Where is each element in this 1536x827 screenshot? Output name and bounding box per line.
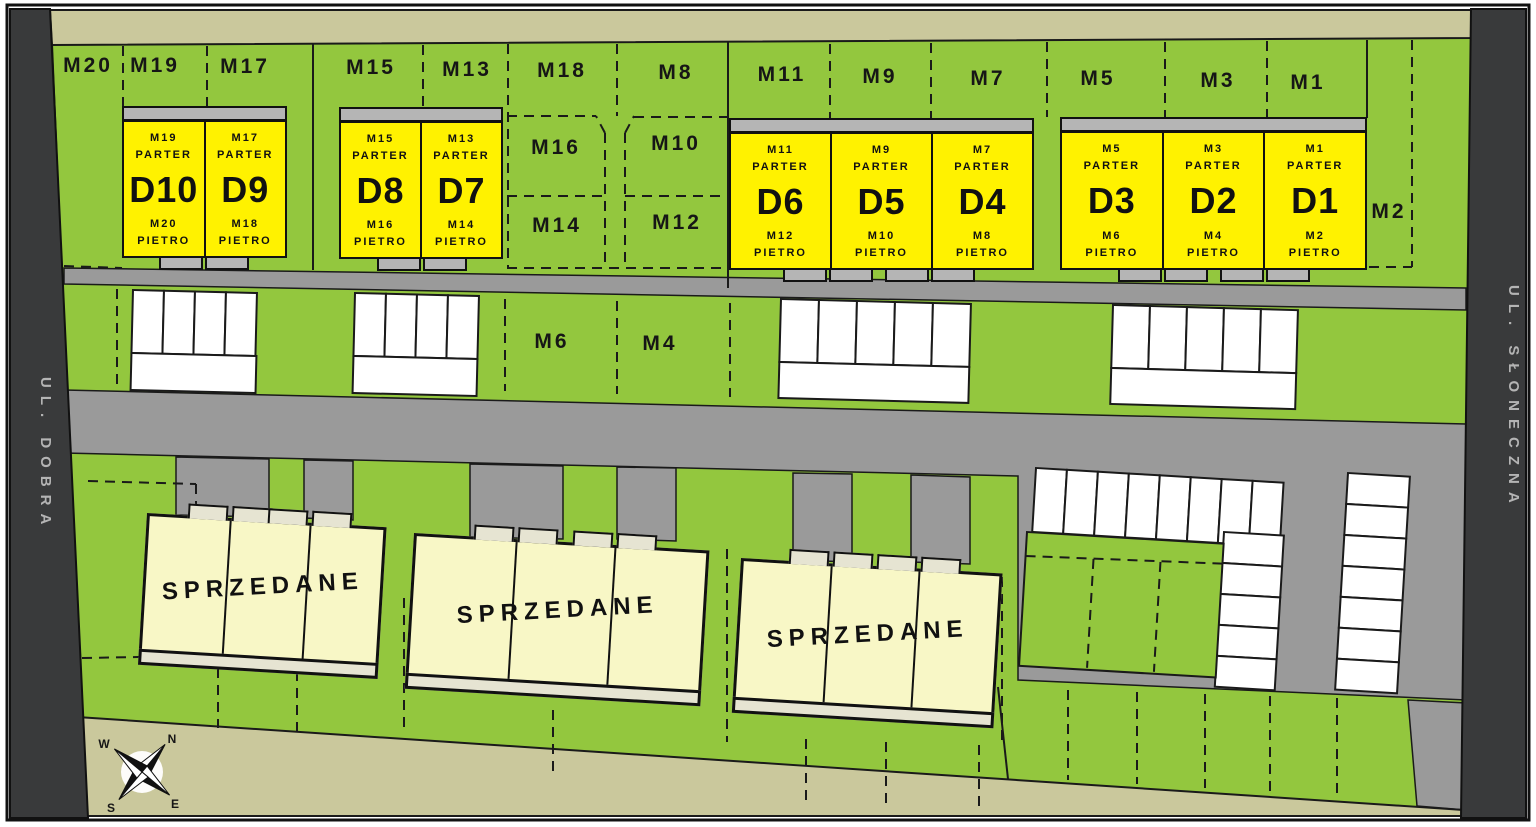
- rear-step: [1220, 270, 1264, 282]
- sold-building-label: SPRZEDANE: [456, 591, 659, 630]
- unit-divider: [606, 548, 617, 698]
- plot-m15[interactable]: M15: [346, 56, 396, 80]
- building-group-3: M11PARTER D6 M12PIETRO M9PARTER D5 M10PI…: [729, 118, 1034, 270]
- porch: [833, 551, 874, 568]
- building-d7[interactable]: M13PARTER D7 M14PIETRO: [420, 123, 501, 257]
- building-roof-strip: [122, 106, 287, 121]
- plot-m12[interactable]: M12: [652, 211, 702, 235]
- compass-south-label: S: [107, 801, 115, 815]
- street-label-sloneczna: UL. SŁONECZNA: [1478, 178, 1522, 618]
- building-group-2: M15PARTER D8 M16PIETRO M13PARTER D7 M14P…: [339, 107, 503, 259]
- building-roof-strip: [339, 107, 503, 122]
- sold-building-3[interactable]: SPRZEDANE: [732, 558, 1003, 728]
- porch: [616, 533, 657, 550]
- porch: [188, 503, 229, 520]
- rear-step: [783, 270, 827, 282]
- sold-building-label: SPRZEDANE: [161, 568, 364, 607]
- rear-step: [205, 258, 249, 270]
- street-label-dobra: UL. DOBRA: [12, 255, 54, 655]
- building-d6[interactable]: M11PARTER D6 M12PIETRO: [731, 134, 830, 268]
- porch: [789, 549, 830, 566]
- plot-m17[interactable]: M17: [220, 55, 270, 79]
- rear-step: [829, 270, 873, 282]
- building-roof-strip: [729, 118, 1034, 133]
- rear-step: [423, 259, 467, 271]
- building-roof-strip: [1060, 117, 1367, 132]
- road-southeast: [1408, 700, 1466, 810]
- parking-column-east: [1335, 473, 1410, 693]
- porch: [232, 506, 273, 523]
- rear-step: [885, 270, 929, 282]
- plot-m19[interactable]: M19: [130, 54, 180, 78]
- porch: [312, 511, 353, 528]
- porch: [877, 554, 918, 571]
- plot-m16[interactable]: M16: [531, 136, 581, 160]
- rear-step: [377, 259, 421, 271]
- rear-step: [159, 258, 203, 270]
- parking-cluster-3: [778, 299, 971, 403]
- plot-m7[interactable]: M7: [970, 67, 1005, 91]
- rear-step: [931, 270, 975, 282]
- sold-building-label: SPRZEDANE: [766, 615, 969, 654]
- site-plan: N E S W M20 M19 M17 M15 M13 M18 M8 M11 M…: [0, 0, 1536, 827]
- porch: [921, 557, 962, 574]
- parking-cluster-1: [131, 290, 258, 393]
- porch: [518, 527, 559, 544]
- top-verge: [50, 10, 1474, 45]
- plot-m10[interactable]: M10: [651, 132, 701, 156]
- sold-building-2[interactable]: SPRZEDANE: [405, 533, 710, 706]
- building-d8[interactable]: M15PARTER D8 M16PIETRO: [341, 123, 420, 257]
- building-d9[interactable]: M17PARTER D9 M18PIETRO: [204, 122, 286, 256]
- courtyard-green-plot: [1019, 532, 1224, 677]
- building-d4[interactable]: M7PARTER D4 M8PIETRO: [931, 134, 1032, 268]
- building-d2[interactable]: M3PARTER D2 M4PIETRO: [1162, 133, 1264, 268]
- compass-east-label: E: [171, 797, 179, 811]
- rear-step: [1266, 270, 1310, 282]
- building-d5[interactable]: M9PARTER D5 M10PIETRO: [830, 134, 931, 268]
- plot-m2[interactable]: M2: [1371, 200, 1406, 224]
- porch: [573, 530, 614, 547]
- plot-m13[interactable]: M13: [442, 58, 492, 82]
- sold-building-1[interactable]: SPRZEDANE: [138, 513, 387, 679]
- plot-m8[interactable]: M8: [658, 61, 693, 85]
- plot-m20[interactable]: M20: [63, 54, 113, 78]
- plot-m1[interactable]: M1: [1290, 71, 1325, 95]
- building-group-1: M19PARTER D10 M20PIETRO M17PARTER D9 M18…: [122, 106, 287, 258]
- parking-cluster-2: [353, 293, 479, 396]
- parking-column-inner: [1215, 532, 1284, 690]
- plot-m18[interactable]: M18: [537, 59, 587, 83]
- plot-m6[interactable]: M6: [534, 330, 569, 354]
- parking-cluster-4: [1110, 305, 1298, 409]
- plot-m11[interactable]: M11: [758, 63, 807, 87]
- building-group-4: M5PARTER D3 M6PIETRO M3PARTER D2 M4PIETR…: [1060, 117, 1367, 270]
- compass-north-label: N: [168, 732, 177, 746]
- plot-m5[interactable]: M5: [1080, 67, 1115, 91]
- building-d1[interactable]: M1PARTER D1 M2PIETRO: [1263, 133, 1365, 268]
- plot-m9[interactable]: M9: [862, 65, 897, 89]
- building-d10[interactable]: M19PARTER D10 M20PIETRO: [124, 122, 204, 256]
- compass-west-label: W: [98, 737, 110, 751]
- building-d3[interactable]: M5PARTER D3 M6PIETRO: [1062, 133, 1162, 268]
- plot-m14[interactable]: M14: [532, 214, 582, 238]
- plot-m3[interactable]: M3: [1200, 69, 1235, 93]
- porch: [268, 508, 309, 525]
- plot-m4[interactable]: M4: [642, 332, 677, 356]
- porch: [474, 525, 515, 542]
- rear-step: [1118, 270, 1162, 282]
- rear-step: [1164, 270, 1208, 282]
